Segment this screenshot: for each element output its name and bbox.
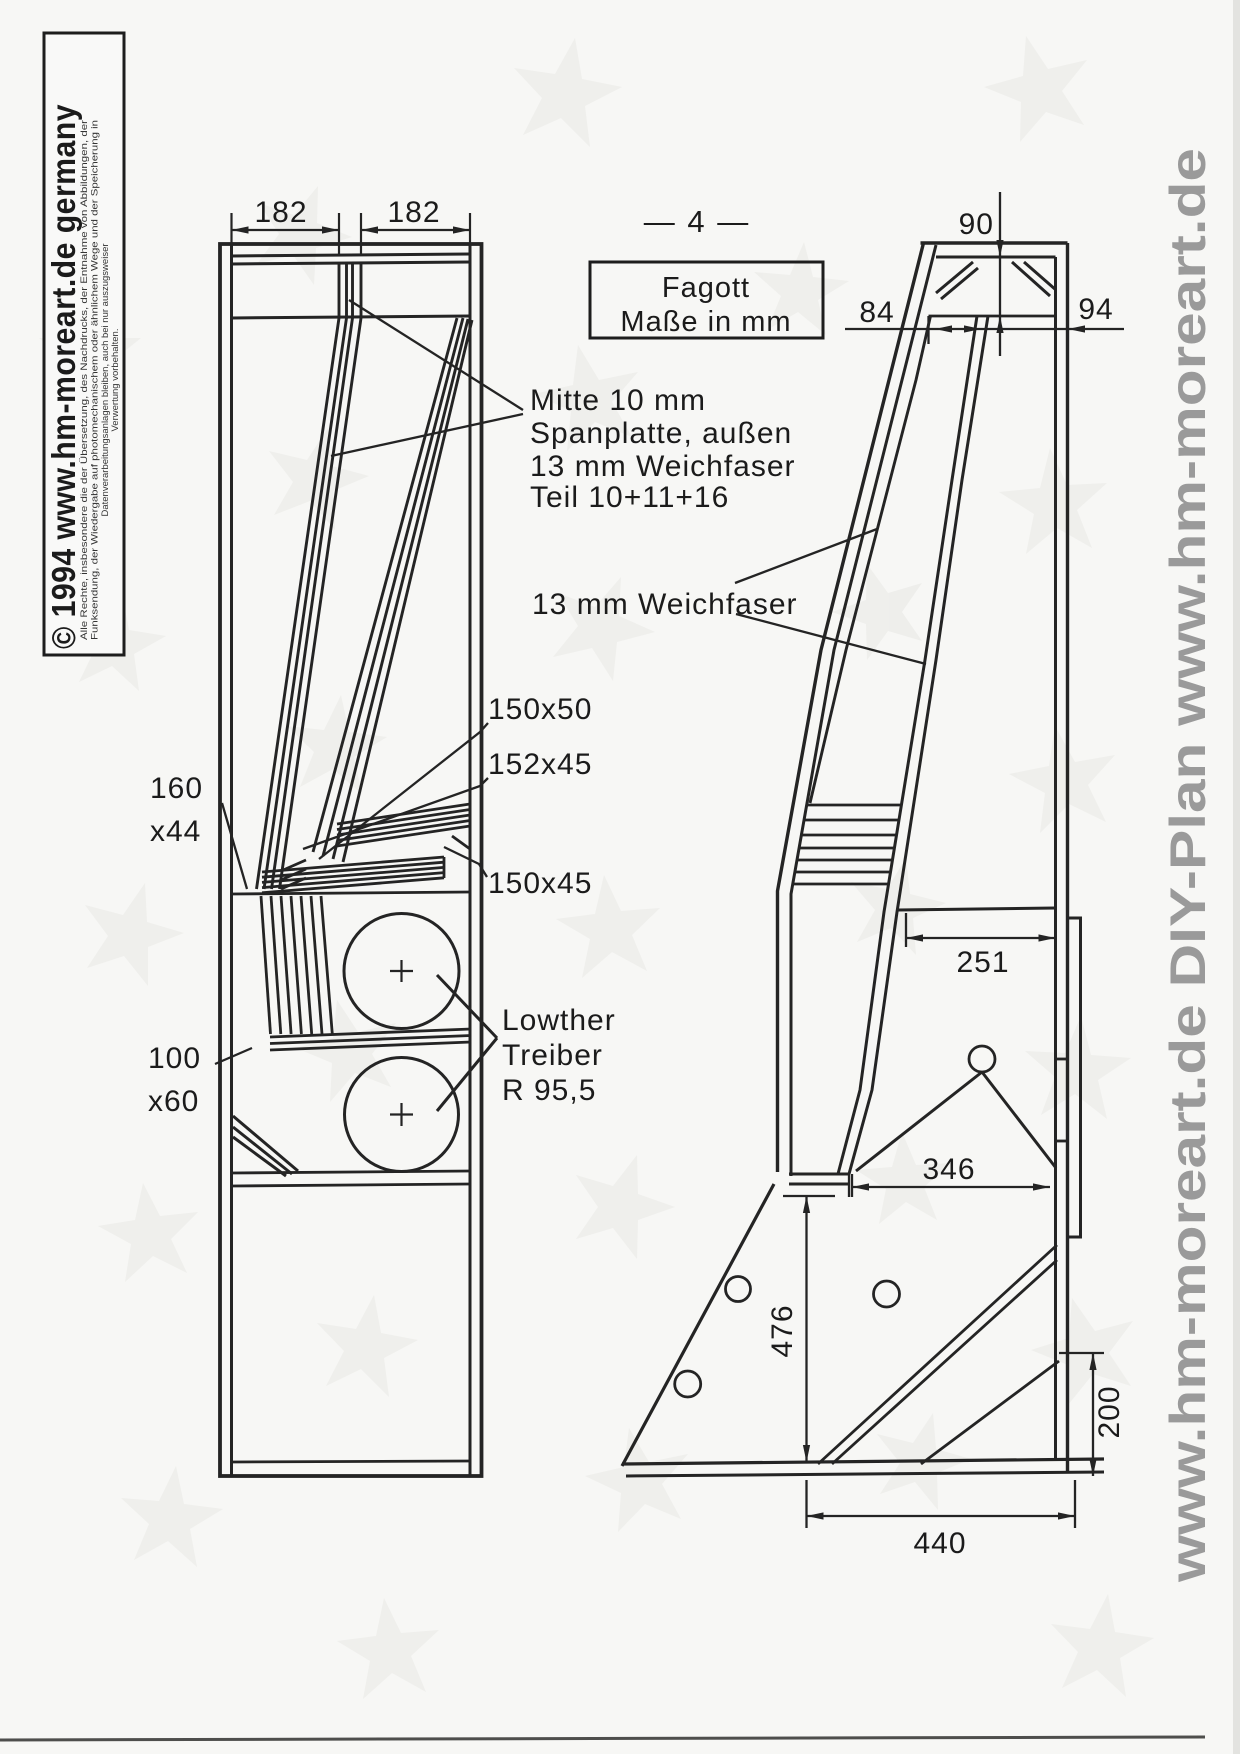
svg-text:www.hm-moreart.de DIY-Plan w: www.hm-moreart.de DIY-Plan www.hm-morear… xyxy=(1160,148,1216,1583)
svg-text:251: 251 xyxy=(956,946,1009,979)
svg-text:100: 100 xyxy=(148,1042,201,1075)
svg-text:160: 160 xyxy=(150,772,203,805)
svg-text:150x45: 150x45 xyxy=(488,867,592,900)
svg-text:© 1994 www.hm-moreart.de ger: © 1994 www.hm-moreart.de germany xyxy=(45,104,82,649)
svg-text:84: 84 xyxy=(859,296,894,329)
svg-text:— 4 —: — 4 — xyxy=(644,204,750,239)
svg-text:182: 182 xyxy=(254,196,307,229)
svg-text:Mitte 10 mm: Mitte 10 mm xyxy=(530,384,706,417)
svg-text:Verwertung vorbehalten.: Verwertung vorbehalten. xyxy=(110,329,121,432)
svg-text:13 mm Weichfaser: 13 mm Weichfaser xyxy=(530,450,796,483)
svg-text:x60: x60 xyxy=(148,1085,199,1118)
svg-text:440: 440 xyxy=(913,1527,966,1560)
svg-text:90: 90 xyxy=(959,208,994,241)
svg-text:Fagott: Fagott xyxy=(662,272,750,304)
svg-text:Maße in mm: Maße in mm xyxy=(620,306,791,338)
svg-text:152x45: 152x45 xyxy=(488,748,592,781)
svg-text:200: 200 xyxy=(1093,1385,1126,1438)
svg-text:R 95,5: R 95,5 xyxy=(502,1074,596,1107)
svg-text:Lowther: Lowther xyxy=(502,1004,616,1037)
svg-text:Treiber: Treiber xyxy=(502,1039,603,1072)
svg-text:94: 94 xyxy=(1078,293,1113,326)
svg-text:x44: x44 xyxy=(150,815,201,848)
svg-text:150x50: 150x50 xyxy=(488,693,592,726)
svg-text:Alle Rechte, insbesondere die: Alle Rechte, insbesondere die der Überse… xyxy=(79,120,90,640)
svg-text:182: 182 xyxy=(387,196,440,229)
svg-text:476: 476 xyxy=(766,1304,799,1357)
svg-text:13 mm Weichfaser: 13 mm Weichfaser xyxy=(532,588,798,621)
svg-text:346: 346 xyxy=(922,1153,975,1186)
svg-text:Funksendung, der Wiedergabe au: Funksendung, der Wiedergabe auf photomec… xyxy=(90,120,101,640)
svg-text:Spanplatte, außen: Spanplatte, außen xyxy=(530,417,792,450)
svg-text:Teil 10+11+16: Teil 10+11+16 xyxy=(530,481,729,514)
